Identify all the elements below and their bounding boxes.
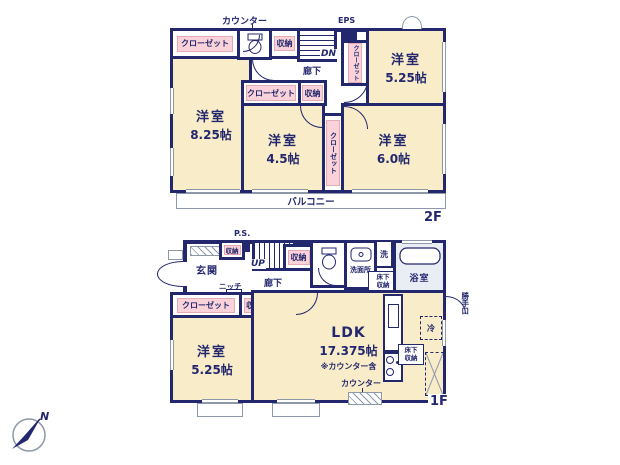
entrance-door-gap	[183, 262, 187, 286]
washer-box: 洗	[375, 240, 393, 268]
backdoor-label-wrap: 勝手口	[459, 283, 471, 323]
entrance-door-arc	[157, 261, 183, 287]
cupboard-box	[425, 352, 444, 396]
compass-north-label: N	[40, 410, 49, 423]
counter-1f-box	[348, 392, 382, 405]
closet-1f-label: クローゼット	[177, 298, 235, 313]
ldk-name: LDK	[331, 325, 365, 341]
entrance-label: 玄関	[196, 262, 218, 277]
ldk-size: 17.375帖	[319, 342, 377, 359]
porch-step	[168, 250, 183, 260]
compass: N	[6, 406, 56, 458]
stove-burner-1	[386, 356, 394, 364]
window-1f-top-bath	[402, 240, 432, 244]
bathroom-label: 浴室	[409, 271, 429, 284]
floorplan-canvas: 洋室 8.25帖 洋室 5.25帖 洋室 4.5帖 洋室 6.0帖 クローゼット…	[0, 0, 620, 465]
room-1f-w-name: 洋室	[197, 341, 227, 360]
ldk-note: ※カウンター含	[321, 361, 377, 372]
floor1-label: 1F	[428, 394, 450, 409]
floor1-plan: 玄関 P.S. 収納 UP 廊下 ニッチ 収納	[0, 0, 620, 465]
kitchen-sink	[388, 304, 399, 328]
hallway-1f-label: 廊下	[264, 276, 282, 289]
bathtub-icon	[399, 247, 441, 265]
window-1f-right	[442, 320, 446, 346]
counter-1f-label: カウンター	[341, 378, 381, 389]
shutter-box-ldk	[272, 403, 320, 417]
shutter-box-w	[197, 403, 243, 417]
window-1f-left	[170, 340, 174, 370]
fridge-box: 冷	[420, 316, 442, 340]
sink-icon	[350, 247, 372, 262]
storage-1f-hall-label: 収納	[288, 250, 310, 265]
stairs-1f-label: UP	[250, 259, 266, 269]
cupboard-x-icon	[426, 353, 443, 395]
fridge-label: 冷	[427, 323, 435, 334]
backdoor-label: 勝手口	[461, 292, 469, 315]
underfloor-storage-kitchen: 床下収納	[398, 344, 424, 365]
ps-label: P.S.	[234, 229, 250, 238]
room-1f-w-size: 5.25帖	[191, 361, 233, 378]
underfloor-storage-kitchen-label: 床下収納	[402, 347, 420, 363]
storage-1f-entry: 収納	[219, 240, 245, 260]
stove-burner-2	[386, 368, 394, 376]
washer-label: 洗	[380, 249, 388, 260]
underfloor-storage-hall-label: 床下収納	[374, 274, 392, 290]
storage-1f-entry-label: 収納	[224, 245, 241, 255]
room-1f-w: 洋室 5.25帖	[170, 315, 254, 403]
compass-icon: N	[6, 406, 56, 458]
